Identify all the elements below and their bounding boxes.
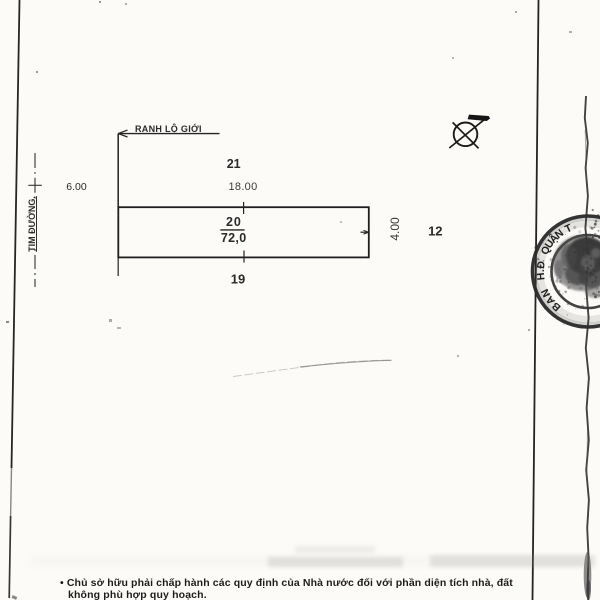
svg-text:H: H bbox=[535, 272, 548, 281]
svg-text:Đ: Đ bbox=[535, 260, 548, 270]
